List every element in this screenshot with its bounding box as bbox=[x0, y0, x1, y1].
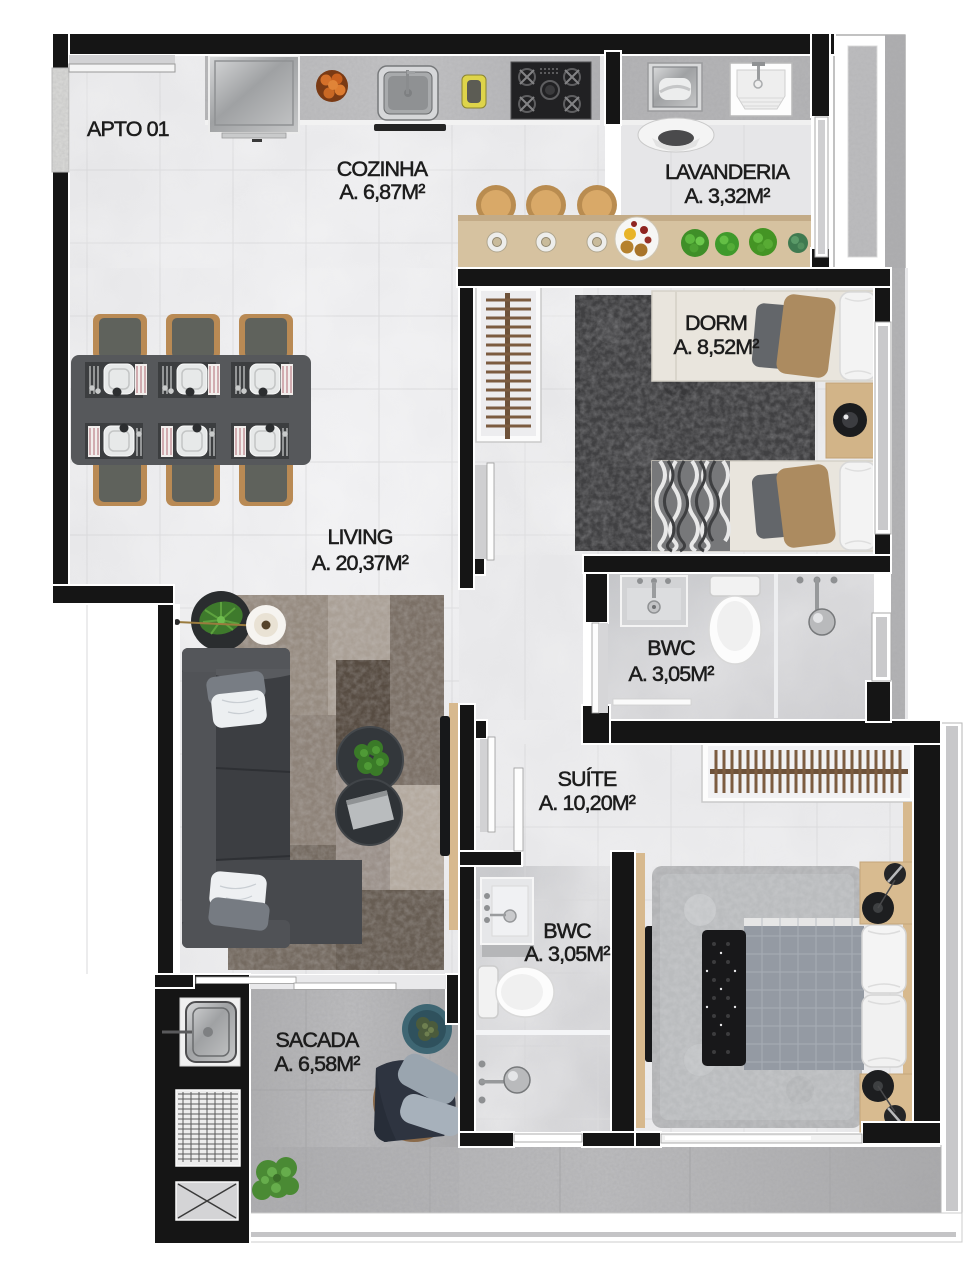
svg-text:LAVANDERIA: LAVANDERIA bbox=[665, 160, 791, 184]
svg-text:APTO 01: APTO 01 bbox=[87, 117, 169, 141]
svg-text:A. 6,58M²: A. 6,58M² bbox=[274, 1052, 360, 1076]
svg-text:DORM: DORM bbox=[685, 311, 747, 335]
svg-text:A. 3,05M²: A. 3,05M² bbox=[524, 942, 610, 966]
svg-text:A. 8,52M²: A. 8,52M² bbox=[673, 335, 759, 359]
svg-text:COZINHA: COZINHA bbox=[337, 157, 429, 181]
svg-text:SUÍTE: SUÍTE bbox=[558, 766, 617, 791]
svg-text:BWC: BWC bbox=[543, 919, 591, 943]
svg-text:A. 10,20M²: A. 10,20M² bbox=[539, 791, 636, 815]
svg-text:BWC: BWC bbox=[647, 636, 695, 660]
svg-text:A. 3,32M²: A. 3,32M² bbox=[684, 184, 770, 208]
svg-text:A. 6,87M²: A. 6,87M² bbox=[339, 180, 425, 204]
svg-text:A. 20,37M²: A. 20,37M² bbox=[312, 551, 409, 575]
svg-text:A. 3,05M²: A. 3,05M² bbox=[628, 662, 714, 686]
svg-text:SACADA: SACADA bbox=[275, 1028, 360, 1052]
svg-text:LIVING: LIVING bbox=[327, 525, 392, 549]
